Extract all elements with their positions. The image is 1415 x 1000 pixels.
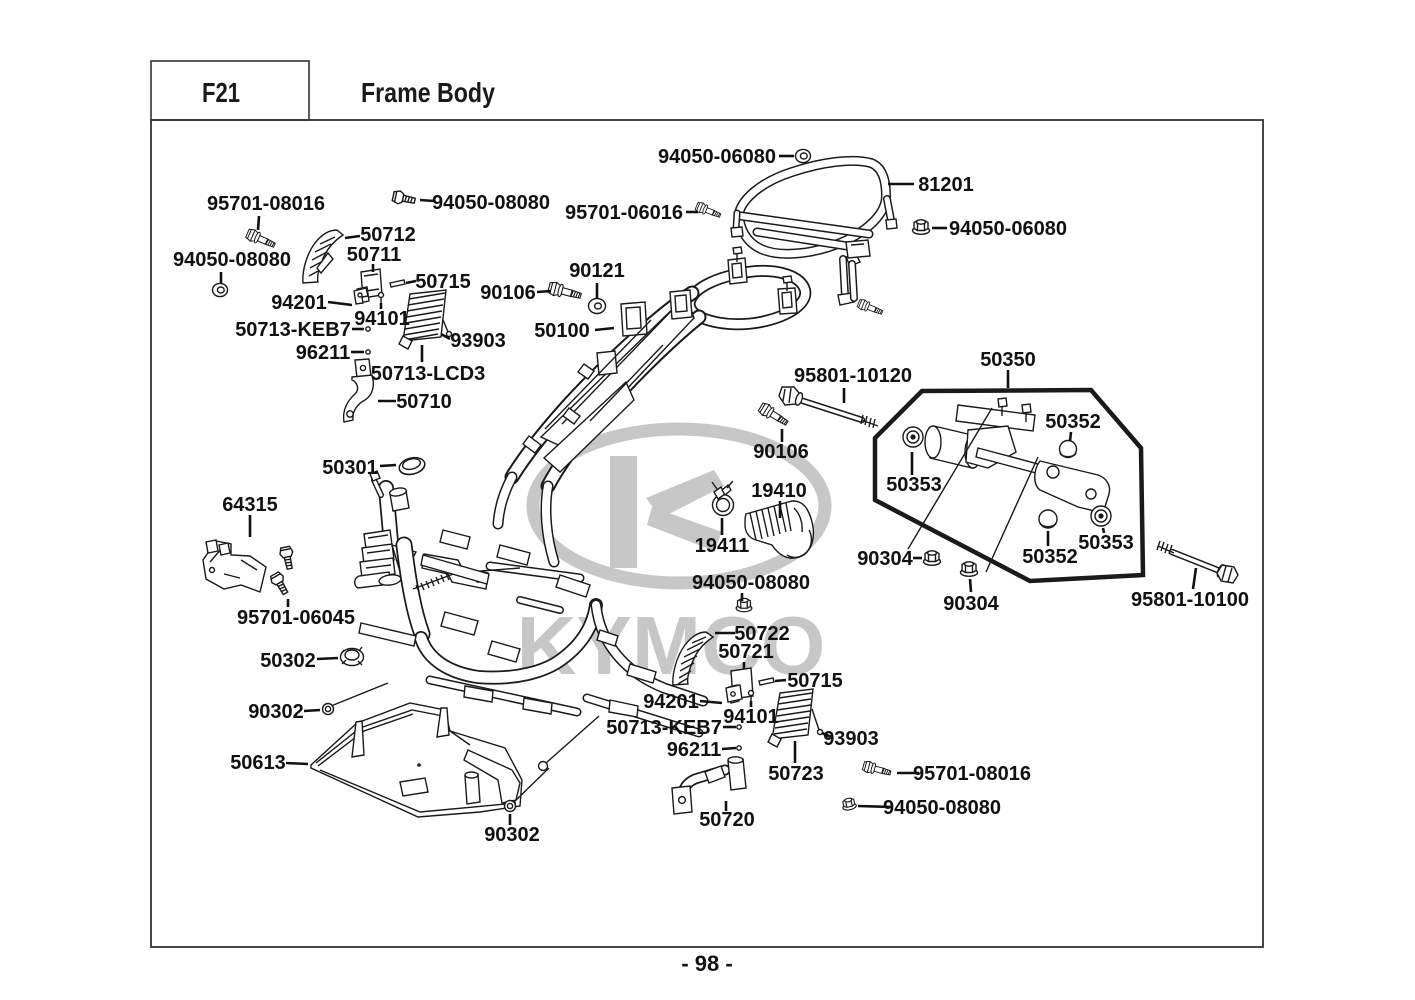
svg-text:50713-LCD3: 50713-LCD3	[371, 363, 486, 385]
svg-text:50100: 50100	[534, 320, 590, 342]
svg-text:50715: 50715	[415, 271, 471, 293]
svg-text:50721: 50721	[718, 641, 774, 663]
svg-text:90304: 90304	[943, 593, 999, 615]
svg-text:19410: 19410	[751, 480, 807, 502]
svg-text:50353: 50353	[886, 474, 942, 496]
svg-text:19411: 19411	[695, 535, 750, 557]
svg-text:50302: 50302	[260, 650, 316, 672]
svg-text:96211: 96211	[296, 342, 351, 364]
svg-text:95801-10100: 95801-10100	[1131, 589, 1249, 611]
svg-text:94050-08080: 94050-08080	[883, 797, 1001, 819]
svg-text:50352: 50352	[1022, 546, 1078, 568]
svg-text:90106: 90106	[480, 282, 536, 304]
svg-text:50350: 50350	[980, 349, 1036, 371]
svg-text:90302: 90302	[248, 701, 304, 723]
svg-text:50720: 50720	[699, 809, 755, 831]
svg-text:95701-06045: 95701-06045	[237, 607, 355, 629]
svg-text:50713-KEB7: 50713-KEB7	[235, 319, 351, 341]
svg-text:64315: 64315	[222, 494, 278, 516]
svg-text:94201: 94201	[271, 292, 327, 314]
svg-text:95701-06016: 95701-06016	[565, 202, 683, 224]
svg-text:94050-08080: 94050-08080	[432, 192, 550, 214]
svg-text:90302: 90302	[484, 824, 540, 846]
svg-text:96211: 96211	[667, 739, 722, 761]
svg-text:94050-06080: 94050-06080	[949, 218, 1067, 240]
svg-text:50713-KEB7: 50713-KEB7	[606, 717, 722, 739]
svg-text:50301: 50301	[322, 457, 378, 479]
svg-text:50710: 50710	[396, 391, 452, 413]
svg-text:50711: 50711	[347, 244, 402, 266]
svg-text:95801-10120: 95801-10120	[794, 365, 912, 387]
svg-text:94050-06080: 94050-06080	[658, 146, 776, 168]
svg-text:50613: 50613	[230, 752, 286, 774]
svg-text:90121: 90121	[569, 260, 625, 282]
svg-text:50715: 50715	[787, 670, 843, 692]
svg-text:94050-08080: 94050-08080	[692, 572, 810, 594]
svg-text:KYMCO: KYMCO	[517, 599, 826, 692]
svg-text:50712: 50712	[360, 224, 416, 246]
svg-text:93903: 93903	[450, 330, 506, 352]
svg-text:94101: 94101	[354, 308, 410, 330]
svg-text:95701-08016: 95701-08016	[207, 193, 325, 215]
svg-text:90304: 90304	[857, 548, 913, 570]
svg-text:- 98 -: - 98 -	[681, 951, 732, 976]
svg-text:95701-08016: 95701-08016	[913, 763, 1031, 785]
svg-text:94101: 94101	[723, 706, 779, 728]
svg-text:94201: 94201	[643, 691, 699, 713]
svg-text:81201: 81201	[918, 174, 974, 196]
svg-text:50353: 50353	[1078, 532, 1134, 554]
svg-text:50723: 50723	[768, 763, 824, 785]
svg-text:Frame Body: Frame Body	[361, 77, 495, 108]
svg-text:94050-08080: 94050-08080	[173, 249, 291, 271]
svg-text:93903: 93903	[823, 728, 879, 750]
svg-text:50352: 50352	[1045, 411, 1101, 433]
svg-text:90106: 90106	[753, 441, 809, 463]
svg-text:F21: F21	[202, 77, 240, 108]
